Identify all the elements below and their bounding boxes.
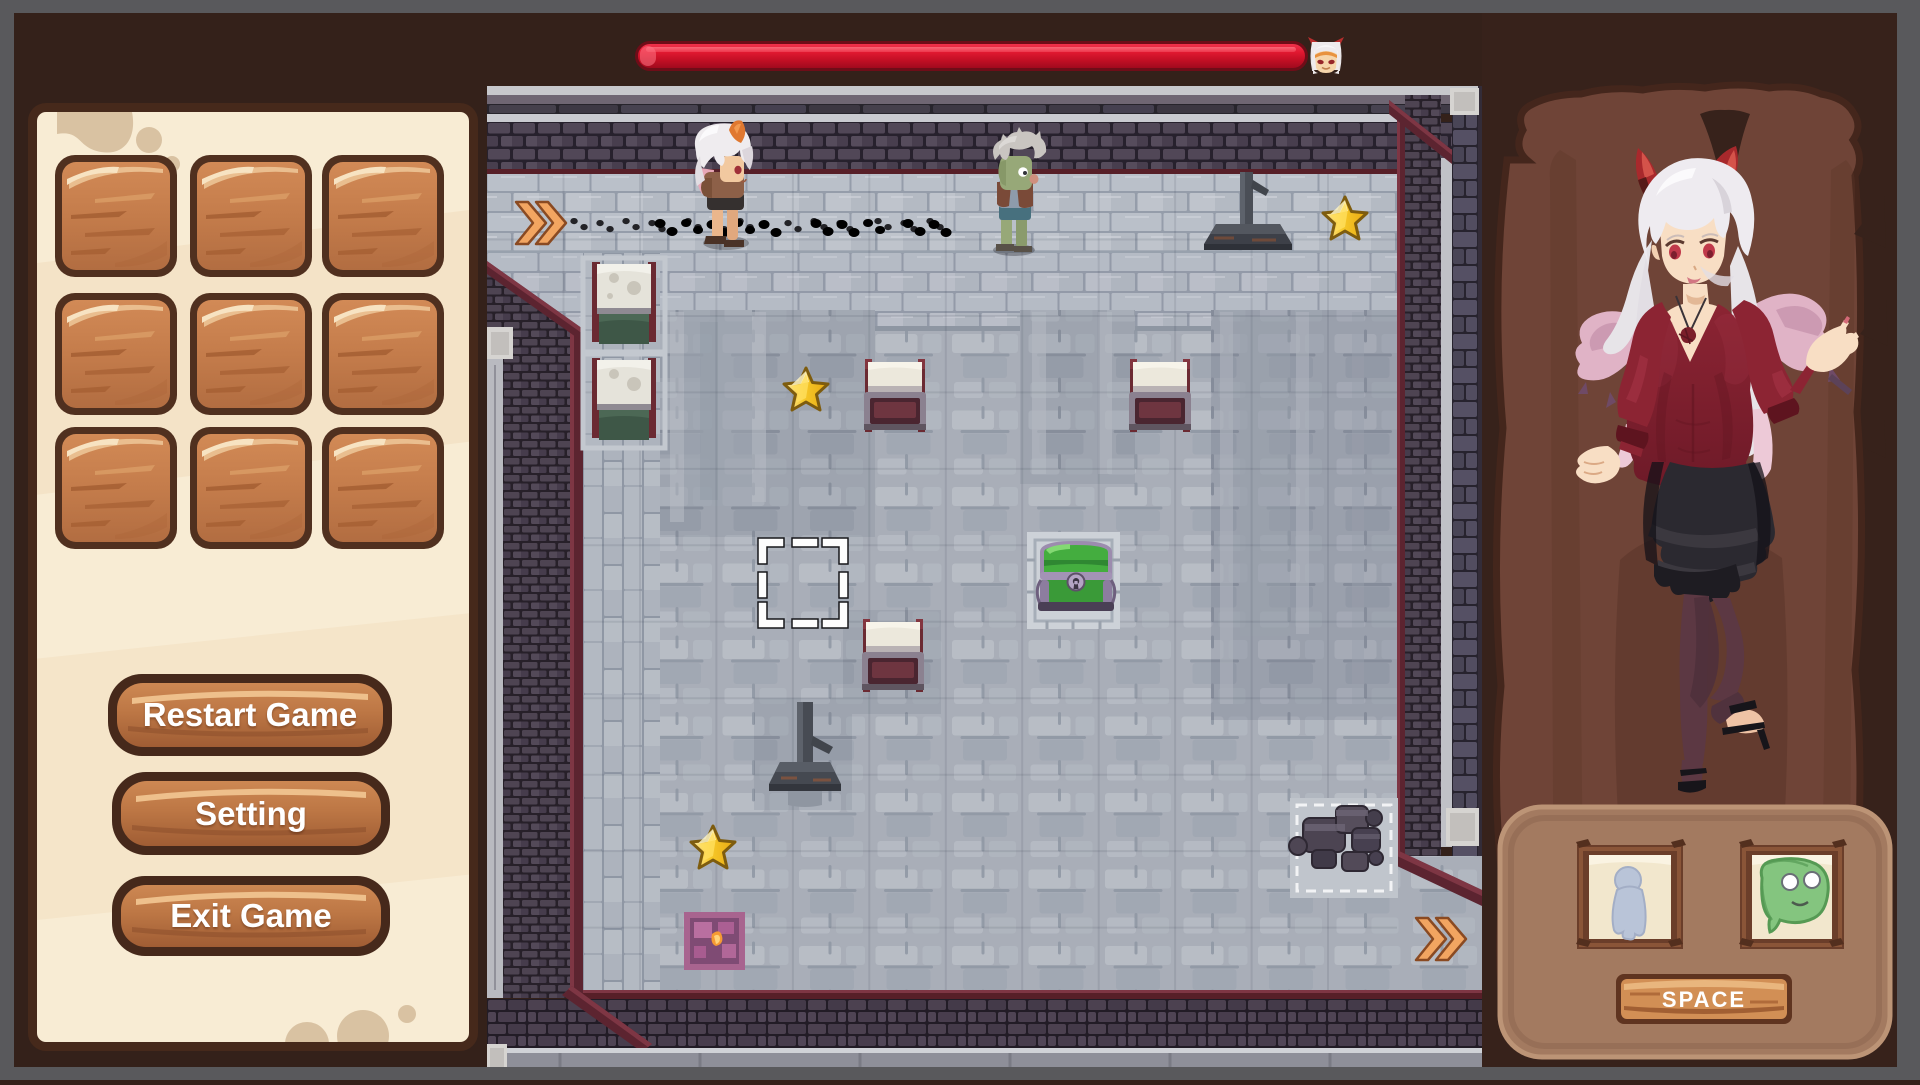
svg-text:SPACE: SPACE (1662, 987, 1746, 1012)
